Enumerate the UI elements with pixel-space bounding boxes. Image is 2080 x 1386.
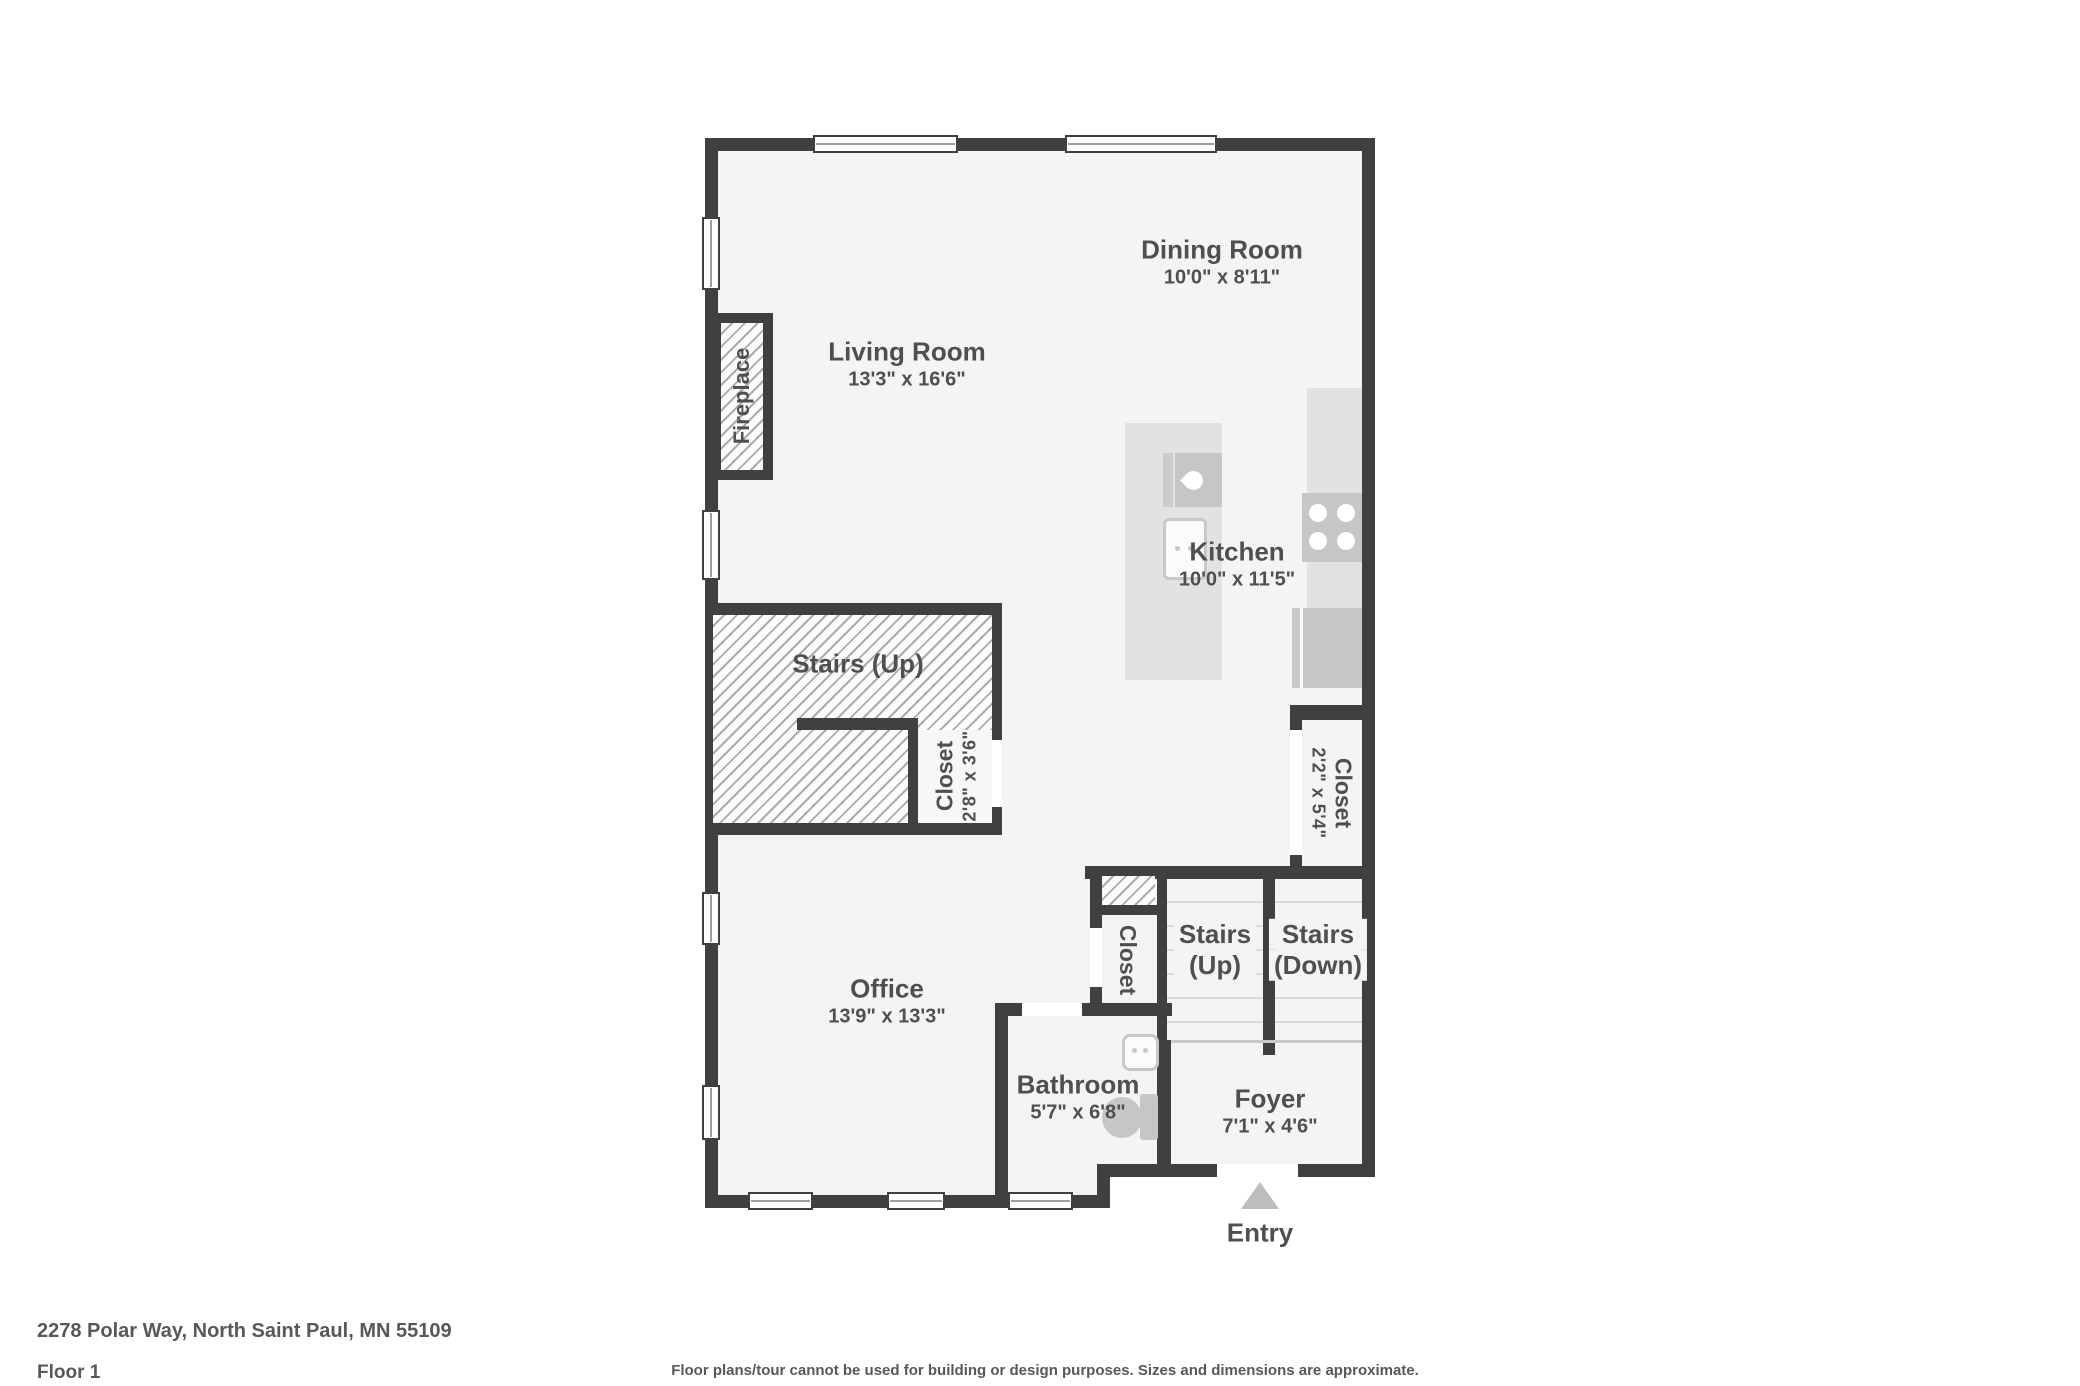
room-label-fireplace: Fireplace [729, 348, 755, 445]
room-label-stairs-down: Stairs (Down) [1269, 919, 1367, 981]
room-label-dining-room: Dining Room 10'0" x 8'11" [1141, 234, 1303, 289]
window [887, 1192, 945, 1210]
room-label-closet-b: Closet 2'2" x 5'4" [1307, 747, 1356, 838]
burner-icon [1337, 532, 1355, 550]
stove-icon [1302, 493, 1362, 562]
window [748, 1192, 813, 1210]
room-label-closet-small: Closet [1113, 925, 1141, 995]
entry-door-opening [1217, 1164, 1298, 1178]
window [702, 1085, 720, 1140]
wall [1290, 866, 1375, 879]
closet-door-opening [1290, 730, 1302, 855]
entry-arrow-icon [1241, 1182, 1279, 1209]
wall [995, 1003, 1008, 1208]
bathroom-sink-icon [1122, 1034, 1159, 1071]
room-label-bathroom: Bathroom 5'7" x 6'8" [1017, 1069, 1140, 1124]
window [1065, 135, 1217, 153]
wall [1090, 905, 1167, 915]
wall [908, 730, 918, 823]
room-label-foyer: Foyer 7'1" x 4'6" [1222, 1083, 1317, 1138]
window [813, 135, 958, 153]
window [1008, 1192, 1073, 1210]
window [702, 217, 720, 290]
room-label-stairs-up-main: Stairs (Up) [792, 648, 923, 679]
room-label-stairs-up-small: Stairs (Up) [1174, 919, 1256, 981]
sink-dot [1143, 1048, 1148, 1053]
window [702, 892, 720, 945]
wall [711, 603, 1002, 615]
burner-icon [1337, 504, 1355, 522]
floor-plan-page: Living Room 13'3" x 16'6" Dining Room 10… [0, 0, 2080, 1386]
floor-number-text: Floor 1 [37, 1362, 100, 1384]
room-label-living-room: Living Room 13'3" x 16'6" [828, 336, 985, 391]
room-label-closet-a: Closet 2'8" x 3'6" [931, 730, 980, 821]
room-label-office: Office 13'9" x 13'3" [828, 973, 945, 1028]
entry-label: Entry [1227, 1217, 1293, 1248]
closet-door-opening [1090, 928, 1102, 987]
kitchen-sink-counter [1163, 453, 1173, 507]
disclaimer-text: Floor plans/tour cannot be used for buil… [671, 1362, 1419, 1379]
wall [1290, 705, 1375, 720]
sink-dot [1132, 1048, 1137, 1053]
room-label-kitchen: Kitchen 10'0" x 11'5" [1179, 536, 1295, 591]
toilet-tank-icon [1140, 1094, 1158, 1140]
wall [711, 823, 1002, 835]
fridge-seam [1300, 608, 1303, 688]
bathroom-door-opening [1022, 1003, 1082, 1016]
wall [705, 138, 1375, 151]
wall [797, 718, 918, 730]
burner-icon [1309, 532, 1327, 550]
wall [1362, 138, 1375, 1177]
burner-icon [1309, 504, 1327, 522]
window [702, 510, 720, 580]
stairs-foyer-line [1171, 1040, 1362, 1043]
chase-hatch [1102, 876, 1155, 906]
closet-door-opening [992, 740, 1002, 807]
address-text: 2278 Polar Way, North Saint Paul, MN 551… [37, 1320, 452, 1343]
